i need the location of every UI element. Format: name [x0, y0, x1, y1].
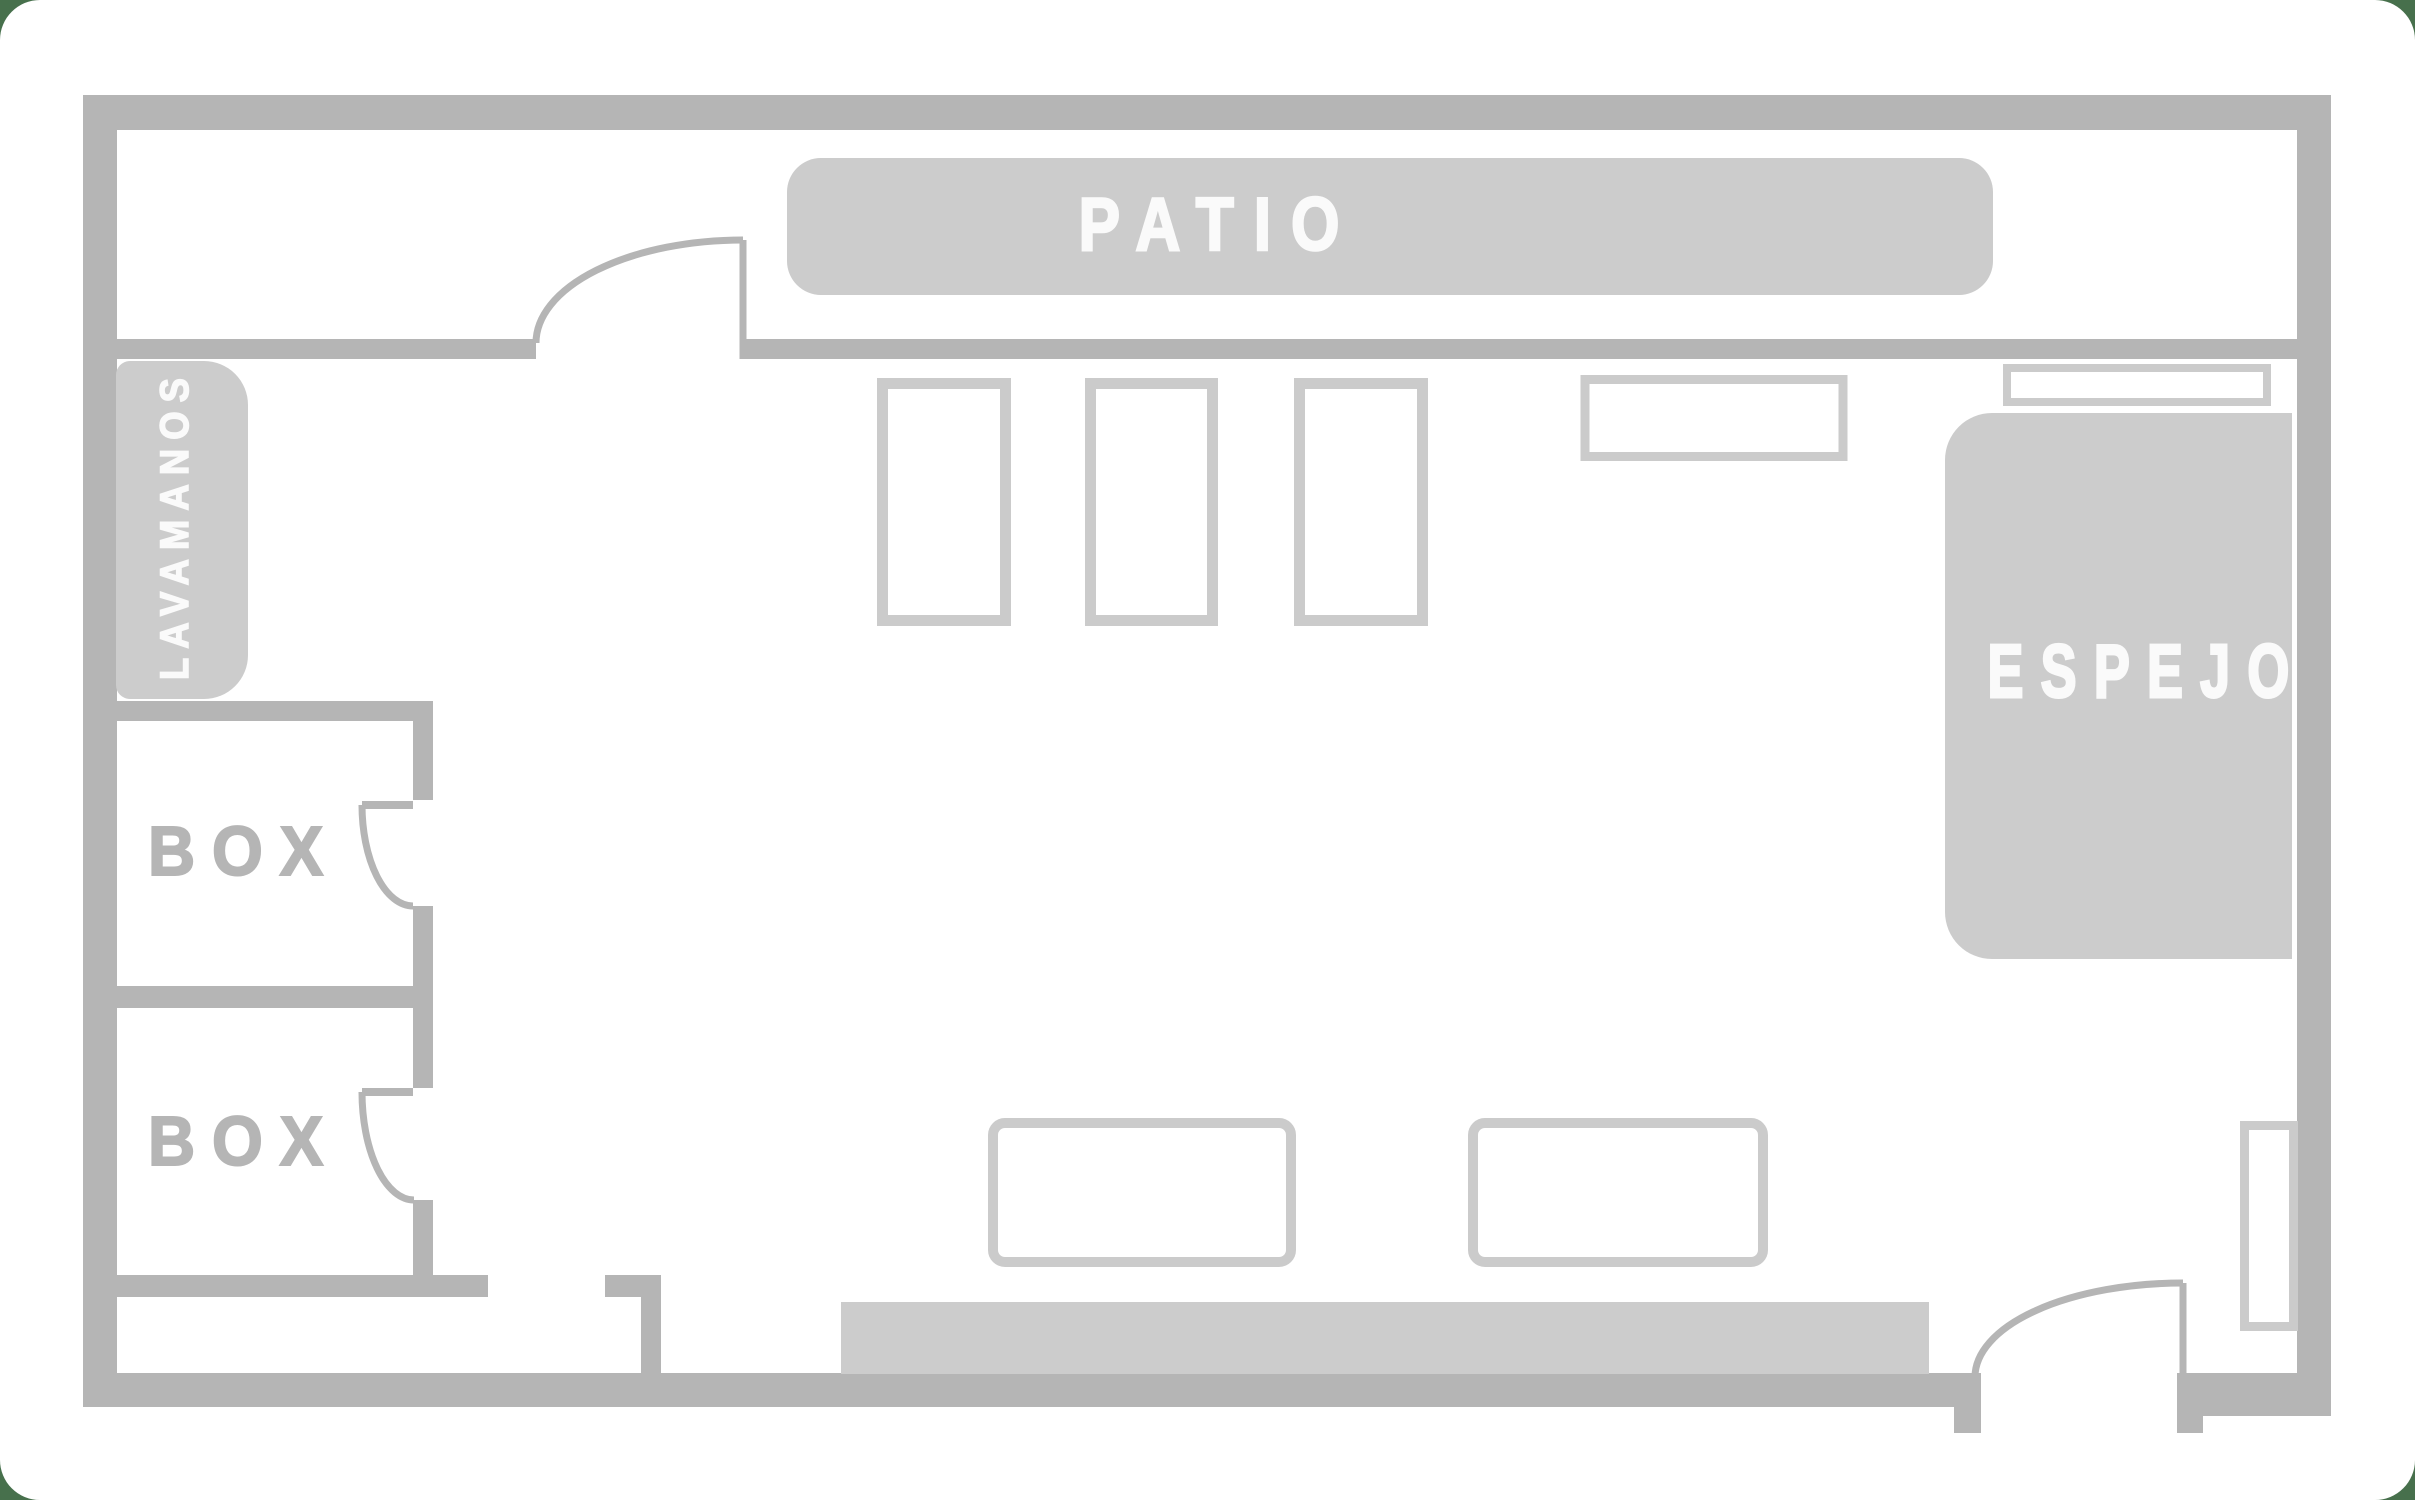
svg-text:PATIO: PATIO — [1079, 182, 1360, 266]
svg-text:BOX: BOX — [148, 1102, 340, 1180]
svg-text:LAVAMANOS: LAVAMANOS — [153, 369, 197, 680]
svg-text:BOX: BOX — [148, 812, 340, 890]
svg-text:ESPEJO: ESPEJO — [1988, 629, 2307, 713]
